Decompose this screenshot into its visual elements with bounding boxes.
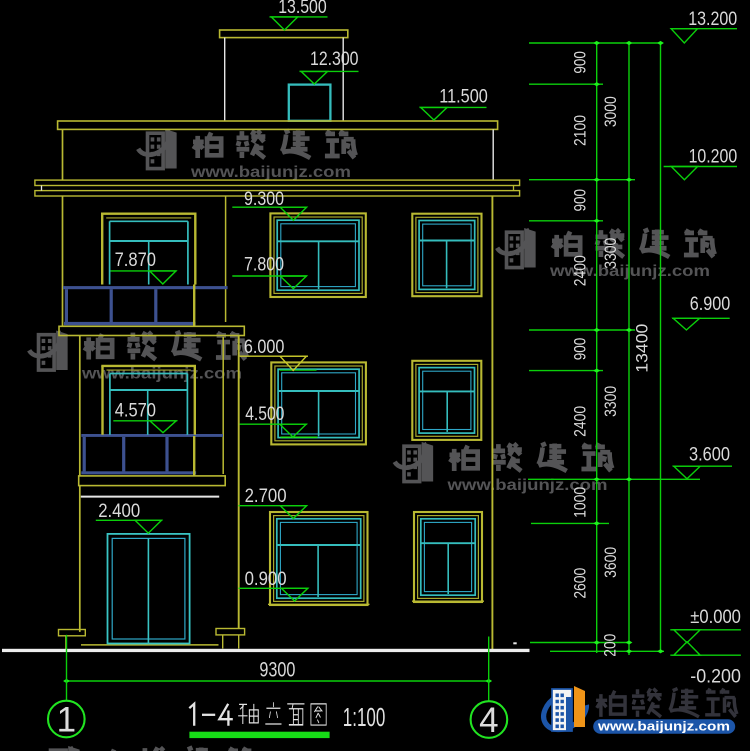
- svg-text:4.500: 4.500: [245, 404, 284, 425]
- svg-text:2400: 2400: [571, 255, 590, 286]
- svg-text:0.900: 0.900: [245, 569, 287, 590]
- svg-text:3000: 3000: [601, 96, 620, 127]
- svg-text:6.000: 6.000: [244, 337, 285, 358]
- svg-text:12.300: 12.300: [310, 49, 359, 70]
- svg-text:2100: 2100: [571, 115, 590, 146]
- svg-text:2.700: 2.700: [245, 486, 287, 507]
- svg-text:3300: 3300: [601, 386, 620, 417]
- svg-text:6.900: 6.900: [690, 294, 731, 315]
- svg-text:11.500: 11.500: [439, 87, 488, 108]
- svg-text:900: 900: [571, 189, 590, 212]
- svg-text:3600: 3600: [601, 547, 620, 578]
- svg-text:9300: 9300: [259, 659, 295, 682]
- svg-text:1000: 1000: [571, 487, 590, 518]
- svg-text:13.500: 13.500: [278, 0, 327, 18]
- svg-text:www.baijunjz.com: www.baijunjz.com: [190, 164, 351, 181]
- svg-text:7.870: 7.870: [115, 250, 156, 271]
- svg-text:-0.200: -0.200: [690, 667, 741, 688]
- svg-text:10.200: 10.200: [689, 147, 738, 168]
- svg-text:4.570: 4.570: [115, 401, 156, 422]
- svg-text:2400: 2400: [571, 406, 590, 437]
- svg-text:900: 900: [571, 338, 590, 361]
- svg-text:2600: 2600: [571, 568, 590, 599]
- svg-text:13400: 13400: [632, 324, 651, 373]
- svg-text:3300: 3300: [601, 238, 620, 269]
- svg-text:200: 200: [601, 634, 620, 657]
- svg-text:1: 1: [57, 701, 76, 740]
- svg-text:3.600: 3.600: [689, 445, 730, 466]
- svg-text:7.800: 7.800: [244, 254, 284, 275]
- svg-text:900: 900: [571, 51, 590, 74]
- svg-text:www.baijunjz.com: www.baijunjz.com: [597, 720, 730, 734]
- svg-text:2.400: 2.400: [98, 501, 140, 522]
- svg-text:±0.000: ±0.000: [690, 607, 741, 628]
- svg-text:4: 4: [479, 701, 498, 740]
- svg-text:13.200: 13.200: [688, 9, 737, 30]
- svg-text:1:100: 1:100: [343, 704, 386, 732]
